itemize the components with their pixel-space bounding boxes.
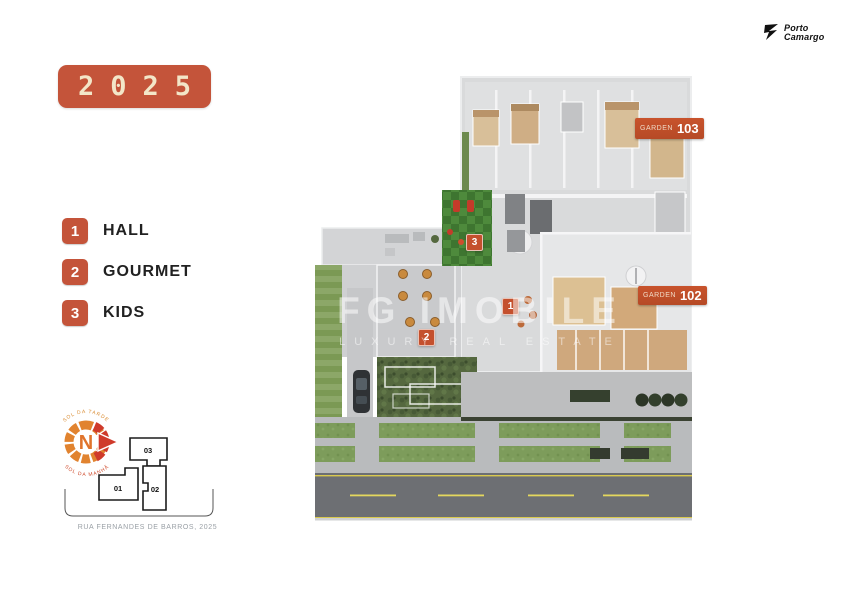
garden-102-number: 102: [680, 288, 702, 303]
keyplan-street-label: RUA FERNANDES DE BARROS, 2025: [55, 524, 240, 531]
plan-marker-gourmet: 2: [418, 329, 435, 346]
year-badge-text: 2025: [62, 71, 207, 102]
legend-item-gourmet: 2 GOURMET: [62, 259, 192, 285]
lane-dash: [438, 495, 484, 497]
legend-number-3: 3: [62, 300, 88, 326]
car: [353, 370, 370, 413]
brand-logo: Porto Camargo: [763, 24, 824, 44]
garden-103-number: 103: [677, 121, 699, 136]
legend-label-hall: HALL: [103, 222, 150, 240]
forecourt: [461, 372, 692, 417]
legend-number-2: 2: [62, 259, 88, 285]
plan-marker-kids: 3: [466, 234, 483, 251]
keyplan-street-bracket: [65, 489, 213, 516]
plan-marker-hall: 1: [502, 298, 519, 315]
garden-102-prefix: GARDEN: [643, 292, 676, 299]
lane-dash: [603, 495, 649, 497]
keyplan-unit-01-label: 01: [114, 484, 122, 493]
legend-number-1: 1: [62, 218, 88, 244]
kids-area: [442, 190, 492, 266]
garden-103-badge: GARDEN 103: [635, 118, 704, 139]
lane-dash: [528, 495, 574, 497]
legend-label-kids: KIDS: [103, 304, 145, 322]
keyplan: 03 01 02: [55, 425, 225, 540]
building-plate-left: [322, 228, 461, 357]
street: [315, 473, 692, 521]
legend-item-kids: 3 KIDS: [62, 300, 192, 326]
marketing-board: 2025 Porto Camargo 1 HALL 2 GOURMET 3 KI…: [0, 0, 841, 600]
porto-camargo-icon: [763, 24, 781, 44]
driveway: [347, 288, 373, 417]
lawn-striped: [315, 265, 342, 417]
lane-dash: [350, 495, 396, 497]
sidewalk: [315, 417, 692, 473]
garden-102-badge: GARDEN 102: [638, 286, 707, 305]
brand-name-line2: Camargo: [784, 33, 824, 42]
brand-name: Porto Camargo: [784, 24, 824, 42]
legend-label-gourmet: GOURMET: [103, 263, 192, 281]
border-hedge: [462, 132, 469, 192]
legend-item-hall: 1 HALL: [62, 218, 192, 244]
keyplan-unit-02-label: 02: [151, 485, 159, 494]
year-badge: 2025: [58, 65, 211, 108]
garden-103-prefix: GARDEN: [640, 125, 673, 132]
legend: 1 HALL 2 GOURMET 3 KIDS: [62, 218, 192, 326]
keyplan-unit-03-label: 03: [144, 446, 152, 455]
